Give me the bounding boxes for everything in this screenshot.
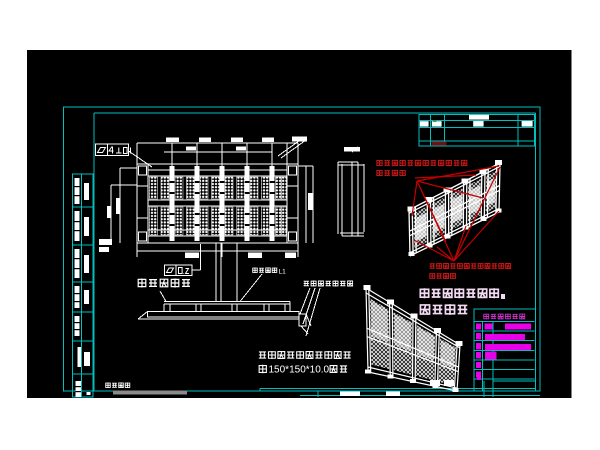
svg-text:150*150*10.0: 150*150*10.0 xyxy=(269,365,330,376)
svg-text:L1: L1 xyxy=(279,269,287,276)
